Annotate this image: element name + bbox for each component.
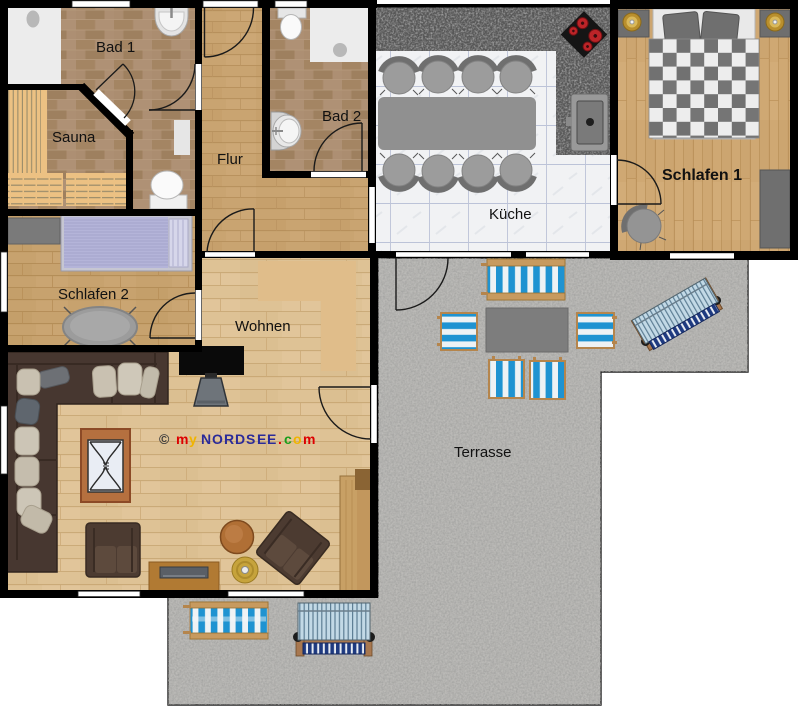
svg-text:.: .	[278, 431, 283, 447]
svg-text:E: E	[257, 431, 267, 447]
svg-text:D: D	[235, 431, 246, 447]
svg-text:Wohnen: Wohnen	[235, 318, 291, 335]
svg-text:Schlafen 1: Schlafen 1	[662, 167, 742, 184]
svg-text:Flur: Flur	[217, 151, 243, 168]
svg-text:R: R	[224, 431, 235, 447]
svg-text:N: N	[201, 431, 212, 447]
svg-text:Schlafen 2: Schlafen 2	[58, 286, 129, 303]
svg-text:S: S	[246, 431, 256, 447]
svg-text:m: m	[303, 431, 316, 447]
svg-text:c: c	[284, 431, 293, 447]
svg-text:Sauna: Sauna	[52, 129, 96, 146]
svg-text:Küche: Küche	[489, 206, 532, 223]
svg-text:o: o	[293, 431, 303, 447]
svg-text:y: y	[189, 431, 198, 447]
svg-text:O: O	[212, 431, 224, 447]
svg-text:©: ©	[159, 431, 170, 447]
svg-text:Bad 2: Bad 2	[322, 108, 361, 125]
svg-text:Terrasse: Terrasse	[454, 444, 512, 461]
svg-text:Bad 1: Bad 1	[96, 39, 135, 56]
svg-text:m: m	[176, 431, 189, 447]
svg-text:E: E	[267, 431, 277, 447]
